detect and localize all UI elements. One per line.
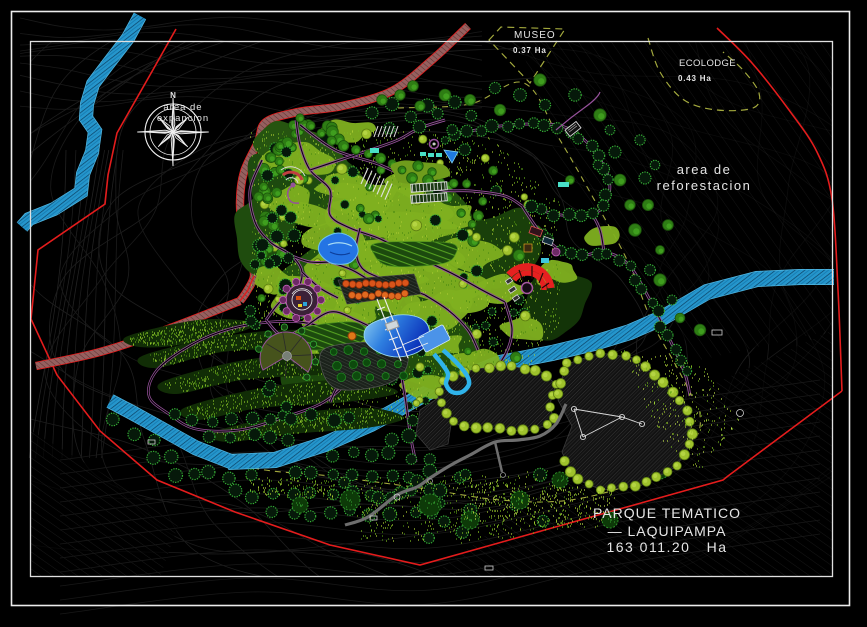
svg-text:0.37 Ha: 0.37 Ha [513, 46, 547, 55]
svg-text:0.43 Ha: 0.43 Ha [678, 74, 712, 83]
svg-text:MUSEO: MUSEO [514, 30, 556, 41]
svg-text:ECOLODGE: ECOLODGE [679, 58, 736, 69]
svg-text:N: N [170, 91, 176, 100]
svg-text:PARQUE TEMATICO: PARQUE TEMATICO [593, 505, 741, 521]
svg-text:area de: area de [163, 102, 202, 113]
svg-text:reforestacion: reforestacion [657, 178, 752, 193]
svg-text:— LAQUIPAMPA: — LAQUIPAMPA [608, 523, 727, 539]
svg-text:163 011.20 Ha: 163 011.20 Ha [606, 539, 727, 555]
svg-text:area de: area de [677, 162, 732, 177]
svg-text:expancion: expancion [157, 113, 209, 124]
